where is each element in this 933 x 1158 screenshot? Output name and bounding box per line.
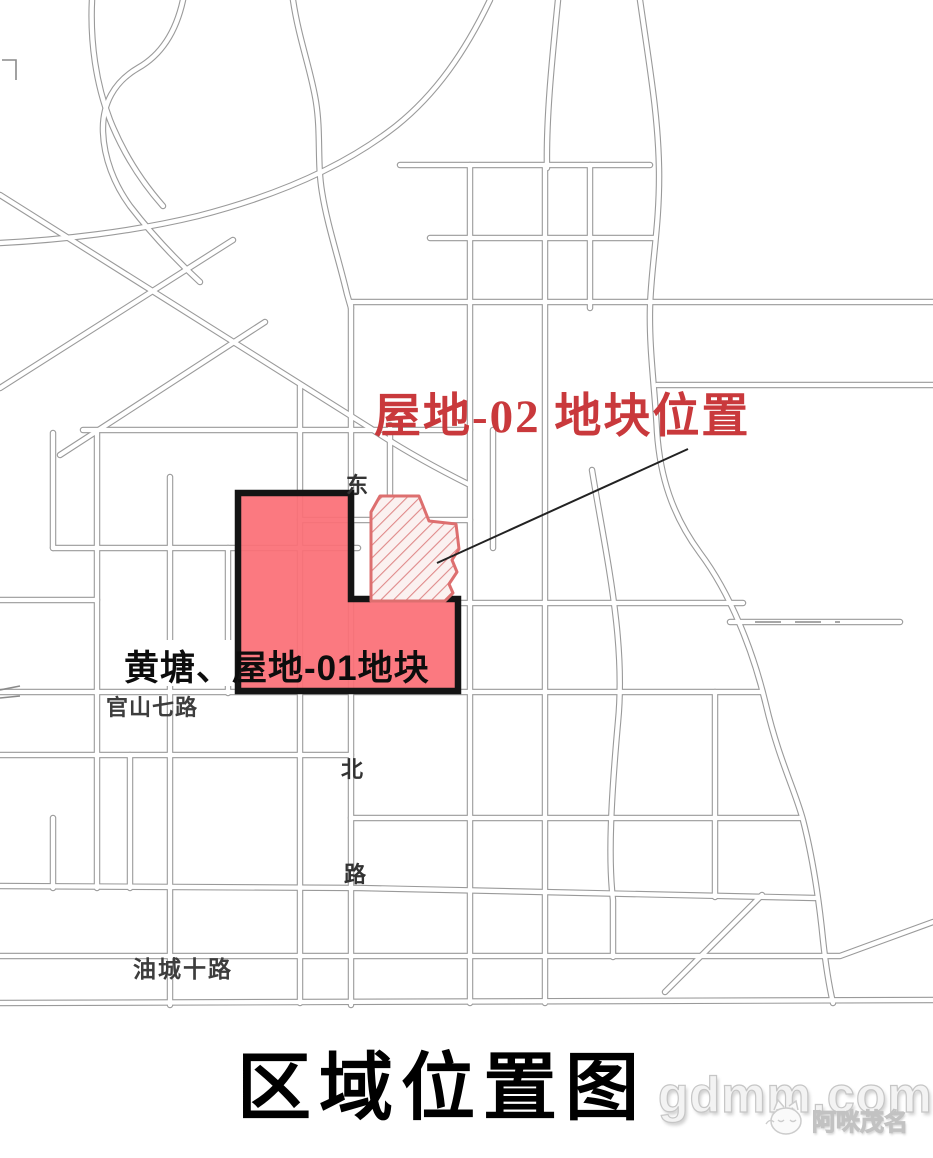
road-label-youcheng-10th: 油城十路 <box>133 950 233 984</box>
road-label-guanshan-7th: 官山七路 <box>106 690 198 722</box>
callout-leader-line <box>437 449 688 563</box>
parcel-01-label: 黄塘、屋地-01地块 <box>124 640 430 691</box>
region-location-map: 屋地-02 地块位置 黄塘、屋地-01地块 官山七路 油城十路 东 北 路 区域… <box>0 0 933 1158</box>
mascot-cat-icon <box>764 1098 810 1140</box>
map-canvas <box>0 0 933 1158</box>
road-label-vertical-char-north: 北 <box>341 752 363 784</box>
road-network <box>0 0 933 1005</box>
map-title: 区域位置图 <box>237 1028 647 1135</box>
parcel-02-callout-title: 屋地-02 地块位置 <box>374 392 750 444</box>
parcel-02-wudi02-hatched <box>371 496 459 601</box>
road-label-vertical-char-road: 路 <box>344 857 366 889</box>
watermark-brand-text: 阿咪茂名 <box>812 1102 908 1137</box>
road-label-vertical-char-east: 东 <box>346 468 368 500</box>
